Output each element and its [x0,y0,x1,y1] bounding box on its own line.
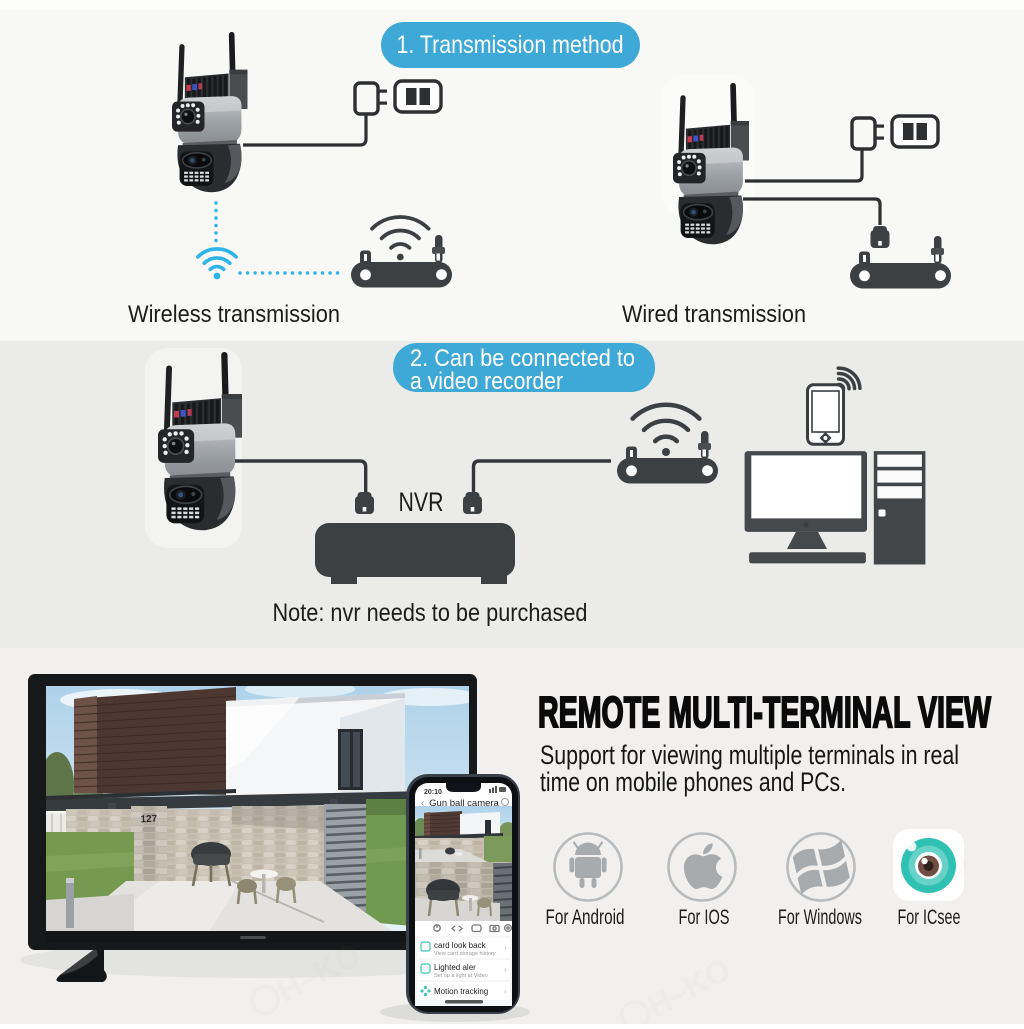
svg-text:REMOTE MULTI-TERMINAL VIEW: REMOTE MULTI-TERMINAL VIEW [538,688,991,737]
svg-text:127: 127 [140,814,158,826]
svg-text:›: › [504,987,507,996]
svg-text:card look back: card look back [434,941,487,950]
svg-text:NVR: NVR [399,487,444,517]
svg-text:Lighted aler: Lighted aler [434,963,476,972]
svg-text:For IOS: For IOS [679,906,730,929]
svg-text:20:10: 20:10 [424,789,442,796]
svg-text:1. Transmission method: 1. Transmission method [397,31,624,59]
svg-text:Wired transmission: Wired transmission [622,301,806,328]
svg-text:For Android: For Android [546,906,625,929]
svg-text:Motion tracking: Motion tracking [434,987,488,996]
svg-text:Note: nvr needs to be purchase: Note: nvr needs to be purchased [273,599,588,627]
svg-text:For Windows: For Windows [778,906,862,929]
svg-text:›: › [504,965,507,974]
svg-text:For ICsee: For ICsee [898,906,961,929]
svg-text:Wireless transmission: Wireless transmission [128,301,340,328]
svg-text:View card storage history: View card storage history [434,951,496,957]
svg-text:a video recorder: a video recorder [410,368,563,395]
svg-text:Support for viewing multiple t: Support for viewing multiple terminals i… [540,740,959,770]
svg-text:›: › [504,943,507,952]
svg-text:Set up a light at Video: Set up a light at Video [434,973,488,979]
svg-text:time on mobile phones and PCs.: time on mobile phones and PCs. [540,767,846,797]
